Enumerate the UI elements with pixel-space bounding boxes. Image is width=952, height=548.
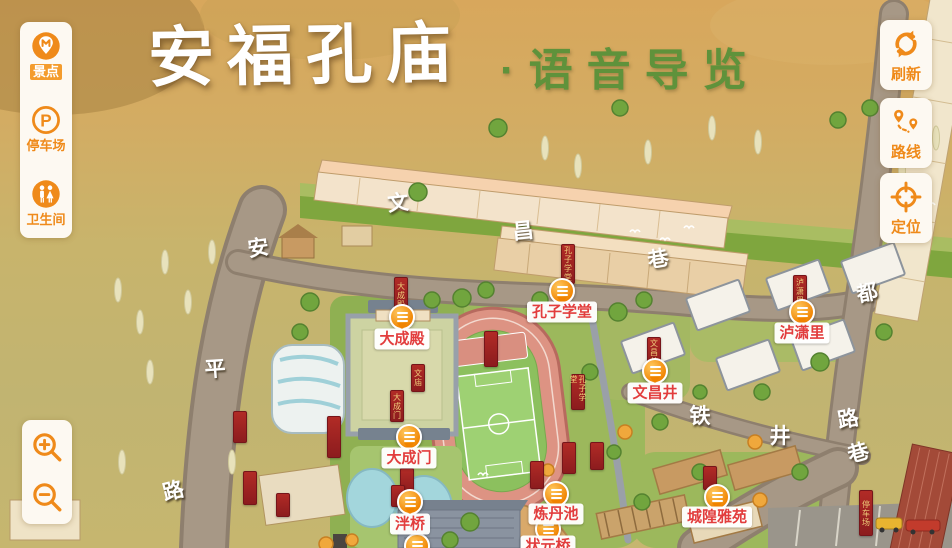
decorative-banner [233, 411, 247, 443]
audio-wave-icon [557, 294, 568, 296]
audio-wave-icon [405, 501, 416, 503]
map-artwork [0, 0, 952, 548]
voice-guide-map-app: 大成殿孔子学堂泸潇里文昌井文庙大成门孔子学堂停车场大成殿孔子学堂泸潇里文昌井大成… [0, 0, 952, 548]
poi-label[interactable]: 大成门 [381, 448, 436, 469]
street-name-label: 井 [770, 420, 791, 450]
audio-wave-icon [551, 489, 562, 491]
poi-marker[interactable] [642, 358, 668, 384]
scenic-spots-label: 景点 [30, 64, 62, 80]
parking-button[interactable]: P 停车场 [26, 104, 65, 154]
audio-wave-icon [712, 492, 723, 494]
left-toolbar: 景点 P 停车场 卫生间 [20, 22, 72, 238]
decorative-banner [243, 471, 257, 505]
zoom-out-icon[interactable] [30, 480, 64, 514]
decorative-banner [327, 416, 341, 458]
audio-wave-icon [405, 505, 416, 507]
poi-banner: 文庙 [411, 364, 425, 392]
poi-marker[interactable] [549, 278, 575, 304]
poi-marker[interactable] [396, 424, 422, 450]
zoom-in-icon[interactable] [30, 430, 64, 464]
poi-banner: 孔子学堂 [571, 374, 585, 410]
poi-banner: 停车场 [859, 490, 873, 536]
audio-wave-icon [712, 500, 723, 502]
route-label: 路线 [891, 141, 921, 162]
audio-wave-icon [404, 440, 415, 442]
poi-label[interactable]: 泮桥 [390, 514, 430, 535]
locate-label: 定位 [891, 216, 921, 237]
decorative-banner [484, 331, 498, 367]
audio-wave-icon [797, 307, 808, 309]
restroom-button[interactable]: 卫生间 [26, 178, 65, 228]
audio-wave-icon [397, 320, 408, 322]
audio-wave-icon [397, 316, 408, 318]
decorative-banner [276, 493, 290, 517]
street-name-label: 文 [386, 186, 410, 218]
poi-label[interactable]: 炼丹池 [528, 504, 583, 525]
street-name-label: 昌 [511, 214, 535, 246]
audio-wave-icon [397, 312, 408, 314]
decorative-banner [530, 461, 544, 489]
decorative-banner [590, 442, 604, 470]
scenic-spot-icon [30, 30, 62, 62]
audio-wave-icon [405, 497, 416, 499]
poi-label[interactable]: 大成殿 [374, 329, 429, 350]
audio-wave-icon [797, 315, 808, 317]
locate-icon [889, 180, 923, 214]
poi-marker[interactable] [389, 304, 415, 330]
audio-wave-icon [404, 436, 415, 438]
street-name-label: 铁 [690, 400, 711, 430]
poi-marker[interactable] [397, 489, 423, 515]
route-icon [889, 105, 923, 139]
scenic-spots-button[interactable]: 景点 [30, 30, 62, 80]
audio-wave-icon [650, 374, 661, 376]
svg-text:P: P [40, 110, 51, 130]
street-name-label: 安 [246, 231, 271, 264]
audio-wave-icon [404, 432, 415, 434]
poi-label[interactable]: 泸潇里 [774, 323, 829, 344]
poi-marker[interactable] [789, 299, 815, 325]
refresh-button[interactable]: 刷新 [880, 20, 932, 90]
locate-button[interactable]: 定位 [880, 173, 932, 243]
page-title: 安福孔庙 [147, 0, 465, 101]
audio-wave-icon [551, 493, 562, 495]
poi-label[interactable]: 孔子学堂 [527, 302, 597, 323]
audio-wave-icon [650, 370, 661, 372]
refresh-label: 刷新 [891, 63, 921, 84]
street-name-label: 平 [203, 352, 226, 383]
audio-wave-icon [412, 541, 423, 543]
decorative-banner [562, 442, 576, 474]
audio-wave-icon [557, 290, 568, 292]
parking-icon: P [30, 104, 62, 136]
poi-label[interactable]: 文昌井 [627, 383, 682, 404]
restroom-label: 卫生间 [26, 212, 65, 228]
poi-banner: 大成门 [390, 390, 404, 422]
parking-label: 停车场 [26, 138, 65, 154]
restroom-icon [30, 178, 62, 210]
audio-wave-icon [543, 528, 554, 530]
audio-wave-icon [543, 532, 554, 534]
poi-label[interactable]: 城隍雅苑 [682, 507, 752, 528]
zoom-toolbar [22, 420, 72, 524]
audio-wave-icon [551, 497, 562, 499]
page-subtitle: ·语音导览 [500, 34, 761, 98]
audio-wave-icon [412, 545, 423, 547]
poi-label[interactable]: 状元桥 [520, 536, 575, 548]
route-button[interactable]: 路线 [880, 98, 932, 168]
audio-wave-icon [712, 496, 723, 498]
audio-wave-icon [797, 311, 808, 313]
audio-wave-icon [650, 366, 661, 368]
refresh-icon [889, 27, 923, 61]
audio-wave-icon [557, 286, 568, 288]
